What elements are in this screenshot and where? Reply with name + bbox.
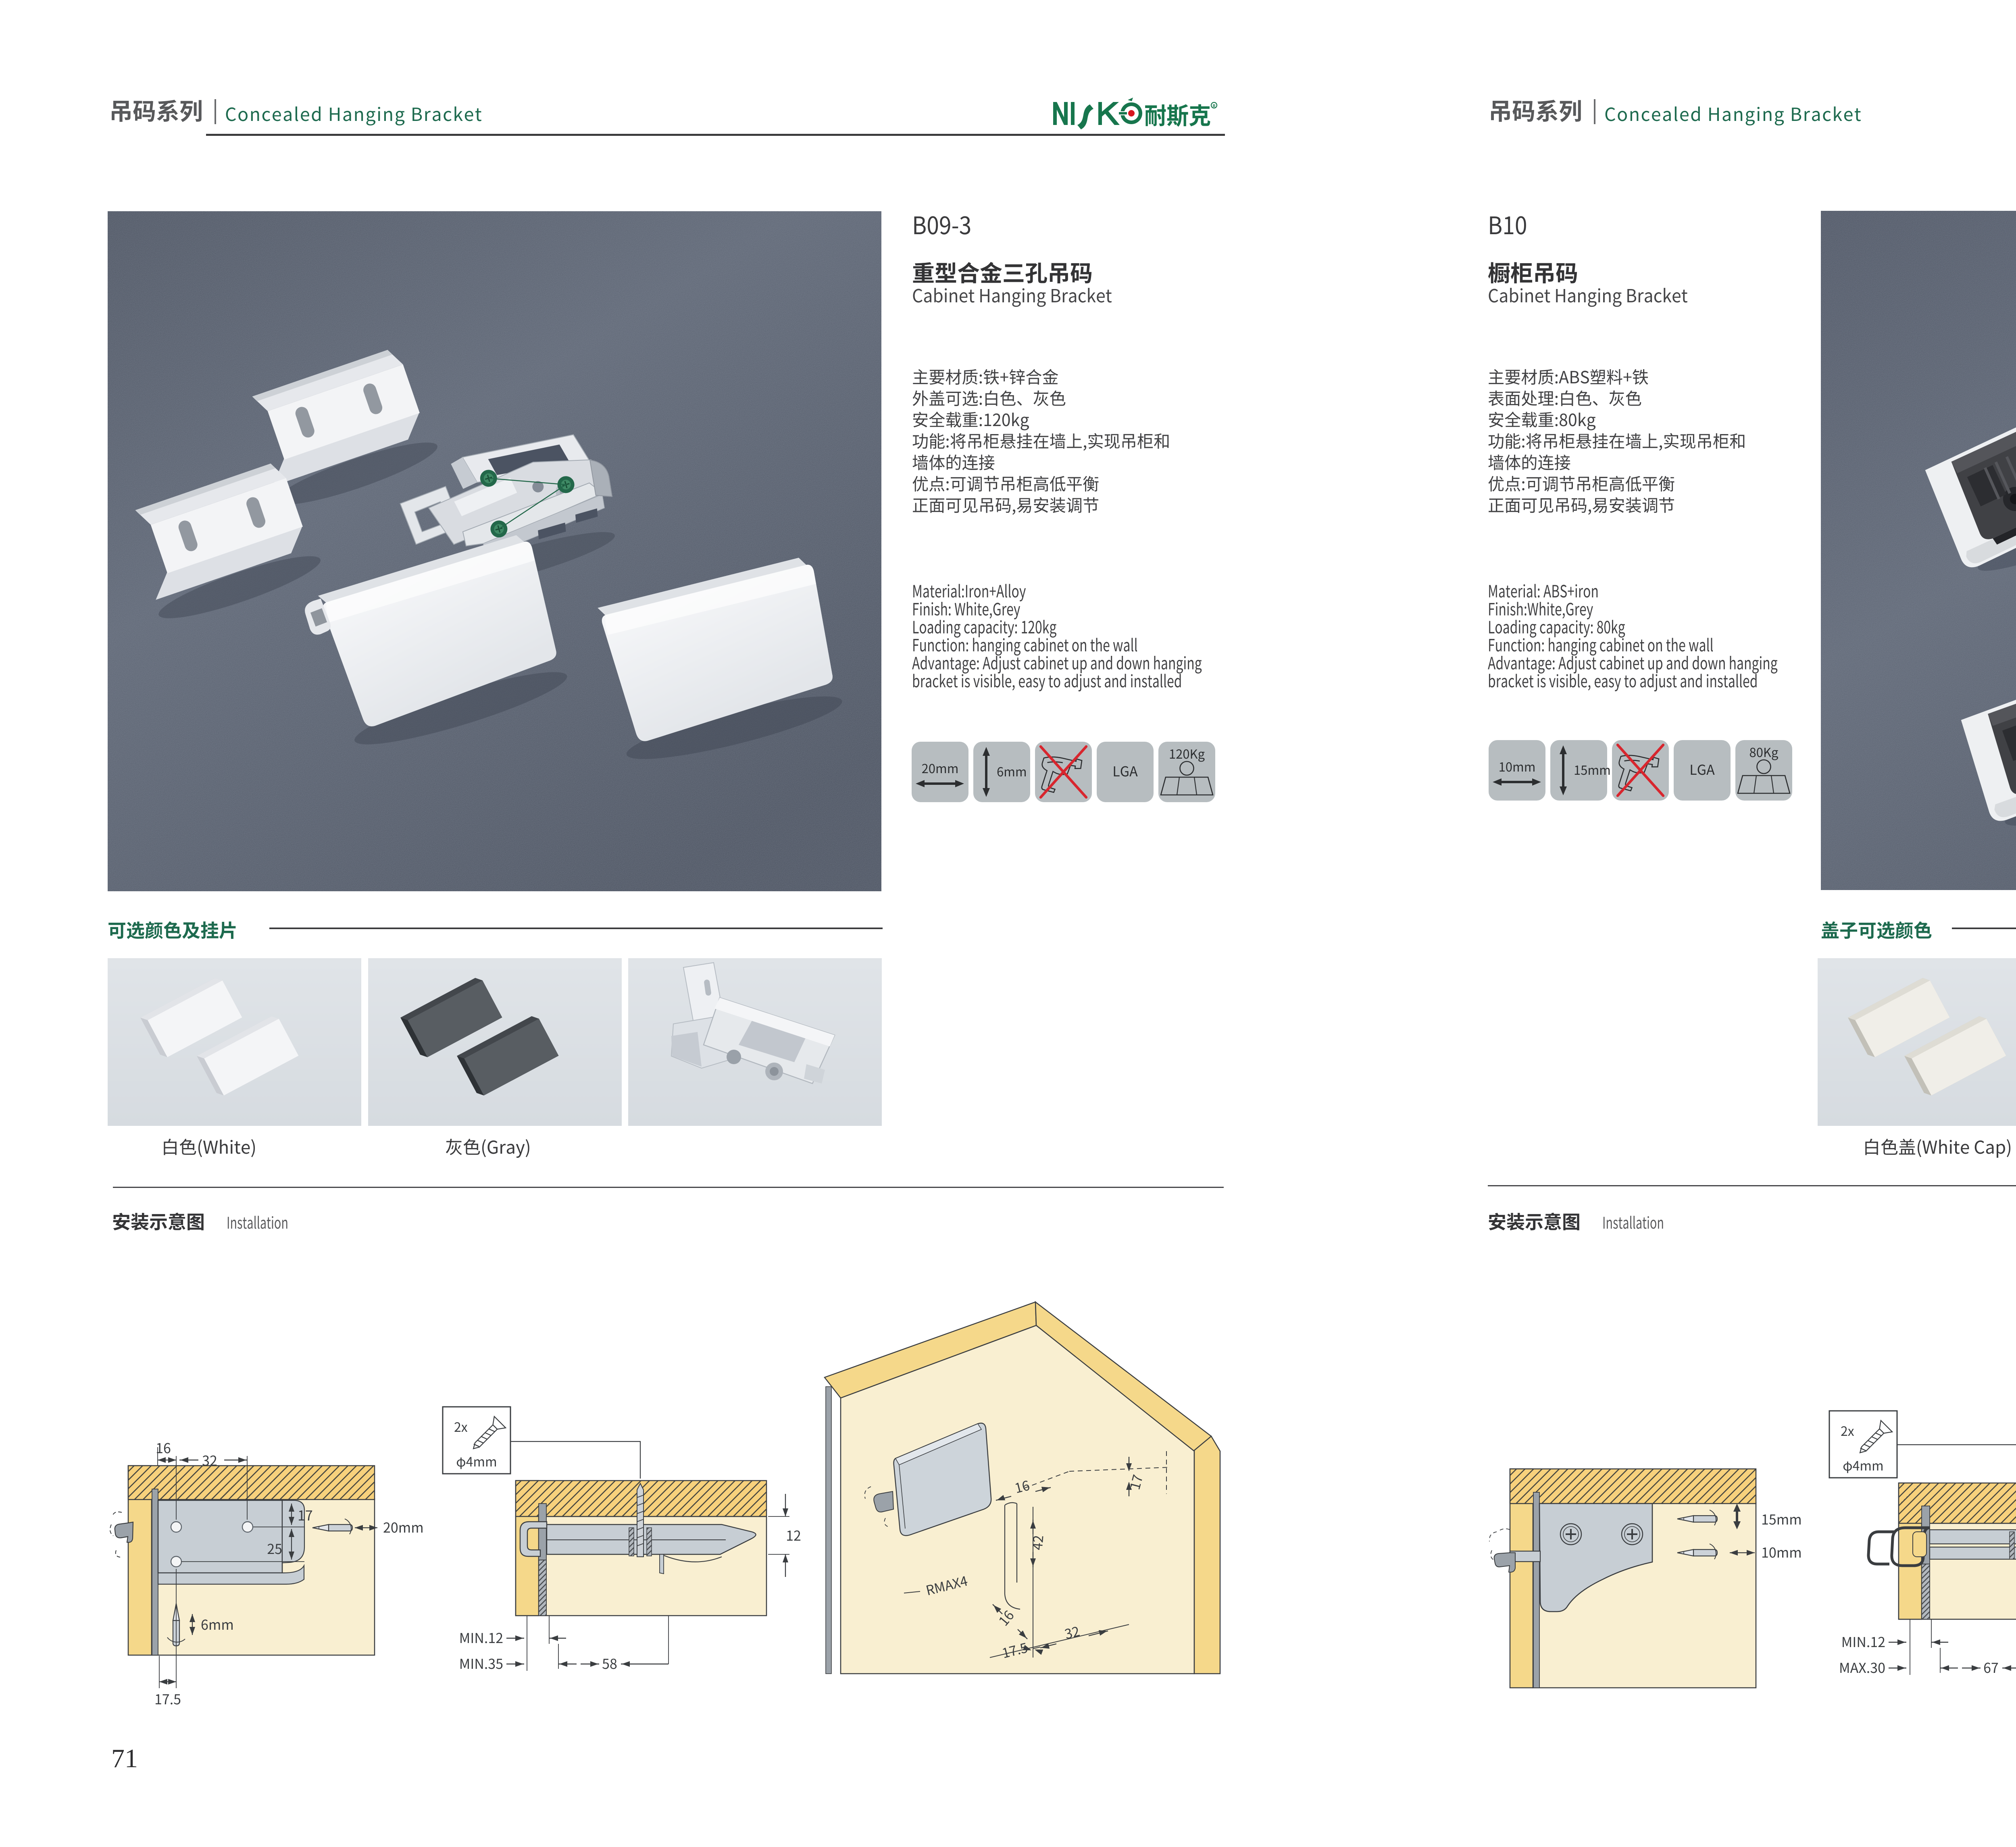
svg-text:71: 71 <box>111 1744 138 1773</box>
